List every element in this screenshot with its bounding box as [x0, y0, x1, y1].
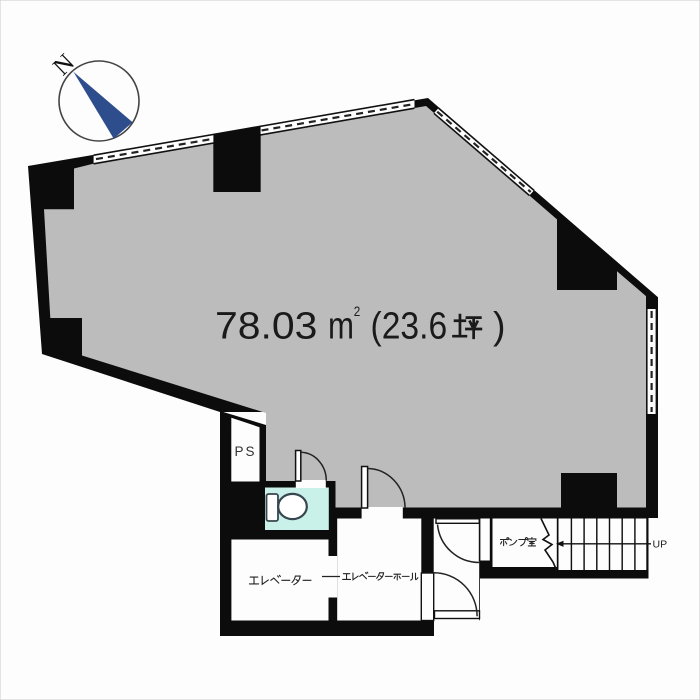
svg-text:(23.6: (23.6: [371, 306, 448, 348]
svg-text:2: 2: [354, 303, 361, 319]
svg-text:78.03: 78.03: [215, 306, 317, 348]
svg-text:PS: PS: [234, 444, 256, 459]
svg-text:UP: UP: [653, 539, 668, 551]
svg-text:): ): [493, 306, 506, 348]
svg-text:m: m: [328, 306, 354, 348]
